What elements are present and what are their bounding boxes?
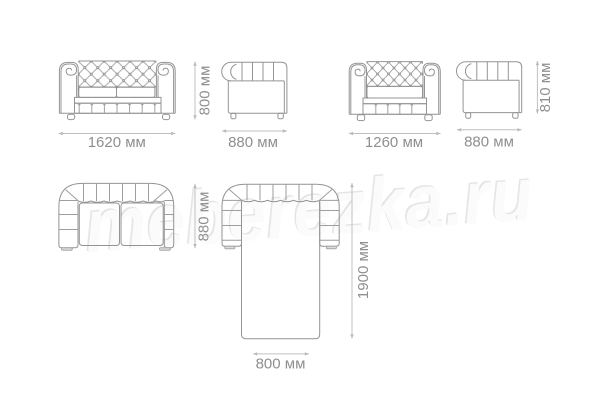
svg-text:1620 мм: 1620 мм [88, 134, 146, 151]
svg-text:800 мм: 800 мм [197, 66, 214, 116]
svg-text:880 мм: 880 мм [228, 134, 278, 151]
svg-text:880 мм: 880 мм [196, 192, 213, 242]
svg-text:1900 мм: 1900 мм [355, 241, 372, 299]
svg-text:800 мм: 800 мм [256, 355, 306, 372]
svg-text:880 мм: 880 мм [464, 133, 514, 150]
svg-text:810 мм: 810 мм [537, 63, 554, 113]
svg-text:1260 мм: 1260 мм [365, 134, 423, 151]
